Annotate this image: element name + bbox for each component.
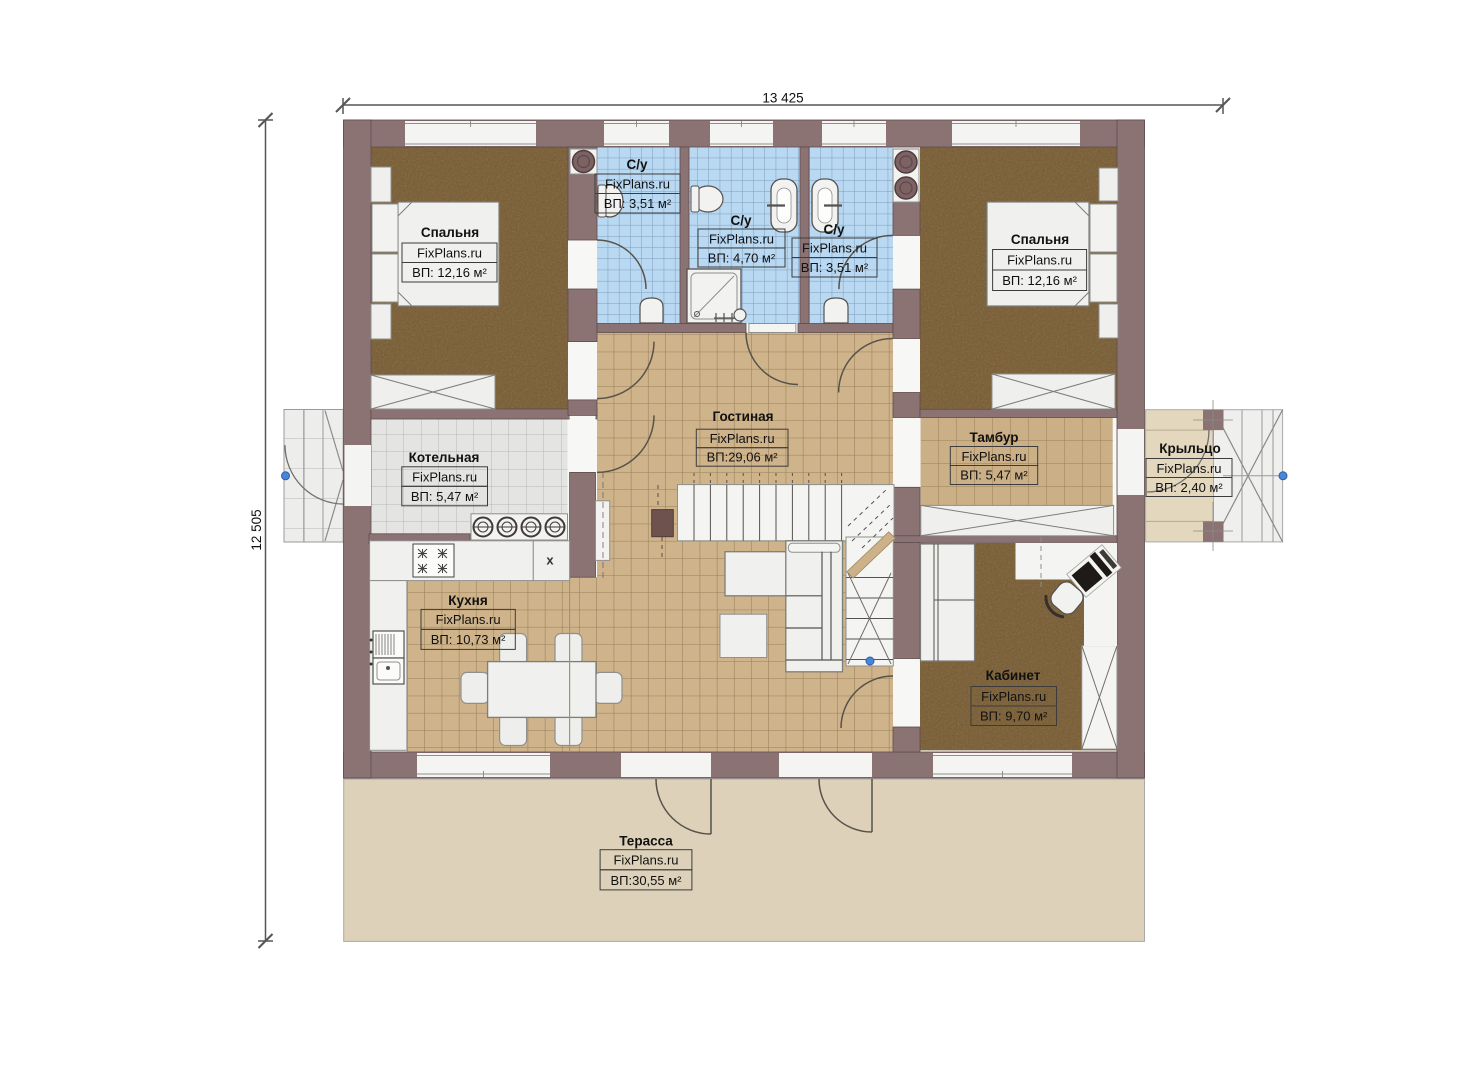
svg-text:Терасса: Терасса [619,834,673,849]
svg-text:Гостиная: Гостиная [712,409,773,424]
svg-text:FixPlans.ru: FixPlans.ru [710,431,775,446]
svg-text:FixPlans.ru: FixPlans.ru [417,246,482,261]
svg-text:С/у: С/у [823,222,845,237]
svg-text:ВП: 5,47 м²: ВП: 5,47 м² [411,489,479,504]
svg-text:x: x [546,553,554,568]
svg-text:FixPlans.ru: FixPlans.ru [981,689,1046,704]
svg-text:Кабинет: Кабинет [986,668,1041,683]
svg-text:Кухня: Кухня [448,593,487,608]
svg-text:ВП: 4,70 м²: ВП: 4,70 м² [708,251,776,266]
svg-text:С/у: С/у [626,157,648,172]
svg-text:С/у: С/у [730,213,752,228]
svg-text:Спальня: Спальня [1011,232,1069,247]
svg-text:ВП:29,06 м²: ВП:29,06 м² [707,450,779,465]
svg-text:FixPlans.ru: FixPlans.ru [436,612,501,627]
svg-text:Котельная: Котельная [409,450,480,465]
svg-text:ВП: 12,16 м²: ВП: 12,16 м² [412,265,487,280]
svg-text:FixPlans.ru: FixPlans.ru [709,232,774,247]
svg-text:FixPlans.ru: FixPlans.ru [613,853,678,868]
svg-text:FixPlans.ru: FixPlans.ru [1156,461,1221,476]
svg-text:ВП: 12,16 м²: ВП: 12,16 м² [1002,273,1077,288]
svg-text:Крыльцо: Крыльцо [1159,441,1220,456]
svg-text:12 505: 12 505 [249,509,264,550]
svg-text:13 425: 13 425 [762,91,803,106]
svg-text:Тамбур: Тамбур [970,430,1019,445]
svg-text:ВП: 5,47 м²: ВП: 5,47 м² [960,468,1028,483]
svg-text:FixPlans.ru: FixPlans.ru [802,241,867,256]
svg-text:ВП:30,55 м²: ВП:30,55 м² [610,873,682,888]
svg-text:ВП: 3,51 м²: ВП: 3,51 м² [801,260,869,275]
svg-text:ВП: 10,73 м²: ВП: 10,73 м² [431,632,506,647]
svg-text:FixPlans.ru: FixPlans.ru [412,469,477,484]
svg-text:ВП: 2,40 м²: ВП: 2,40 м² [1155,480,1223,495]
svg-text:FixPlans.ru: FixPlans.ru [961,449,1026,464]
svg-text:FixPlans.ru: FixPlans.ru [1007,253,1072,268]
svg-text:ВП: 9,70 м²: ВП: 9,70 м² [980,709,1048,724]
svg-text:ВП: 3,51 м²: ВП: 3,51 м² [604,196,672,211]
svg-text:FixPlans.ru: FixPlans.ru [605,177,670,192]
svg-text:Спальня: Спальня [421,225,479,240]
